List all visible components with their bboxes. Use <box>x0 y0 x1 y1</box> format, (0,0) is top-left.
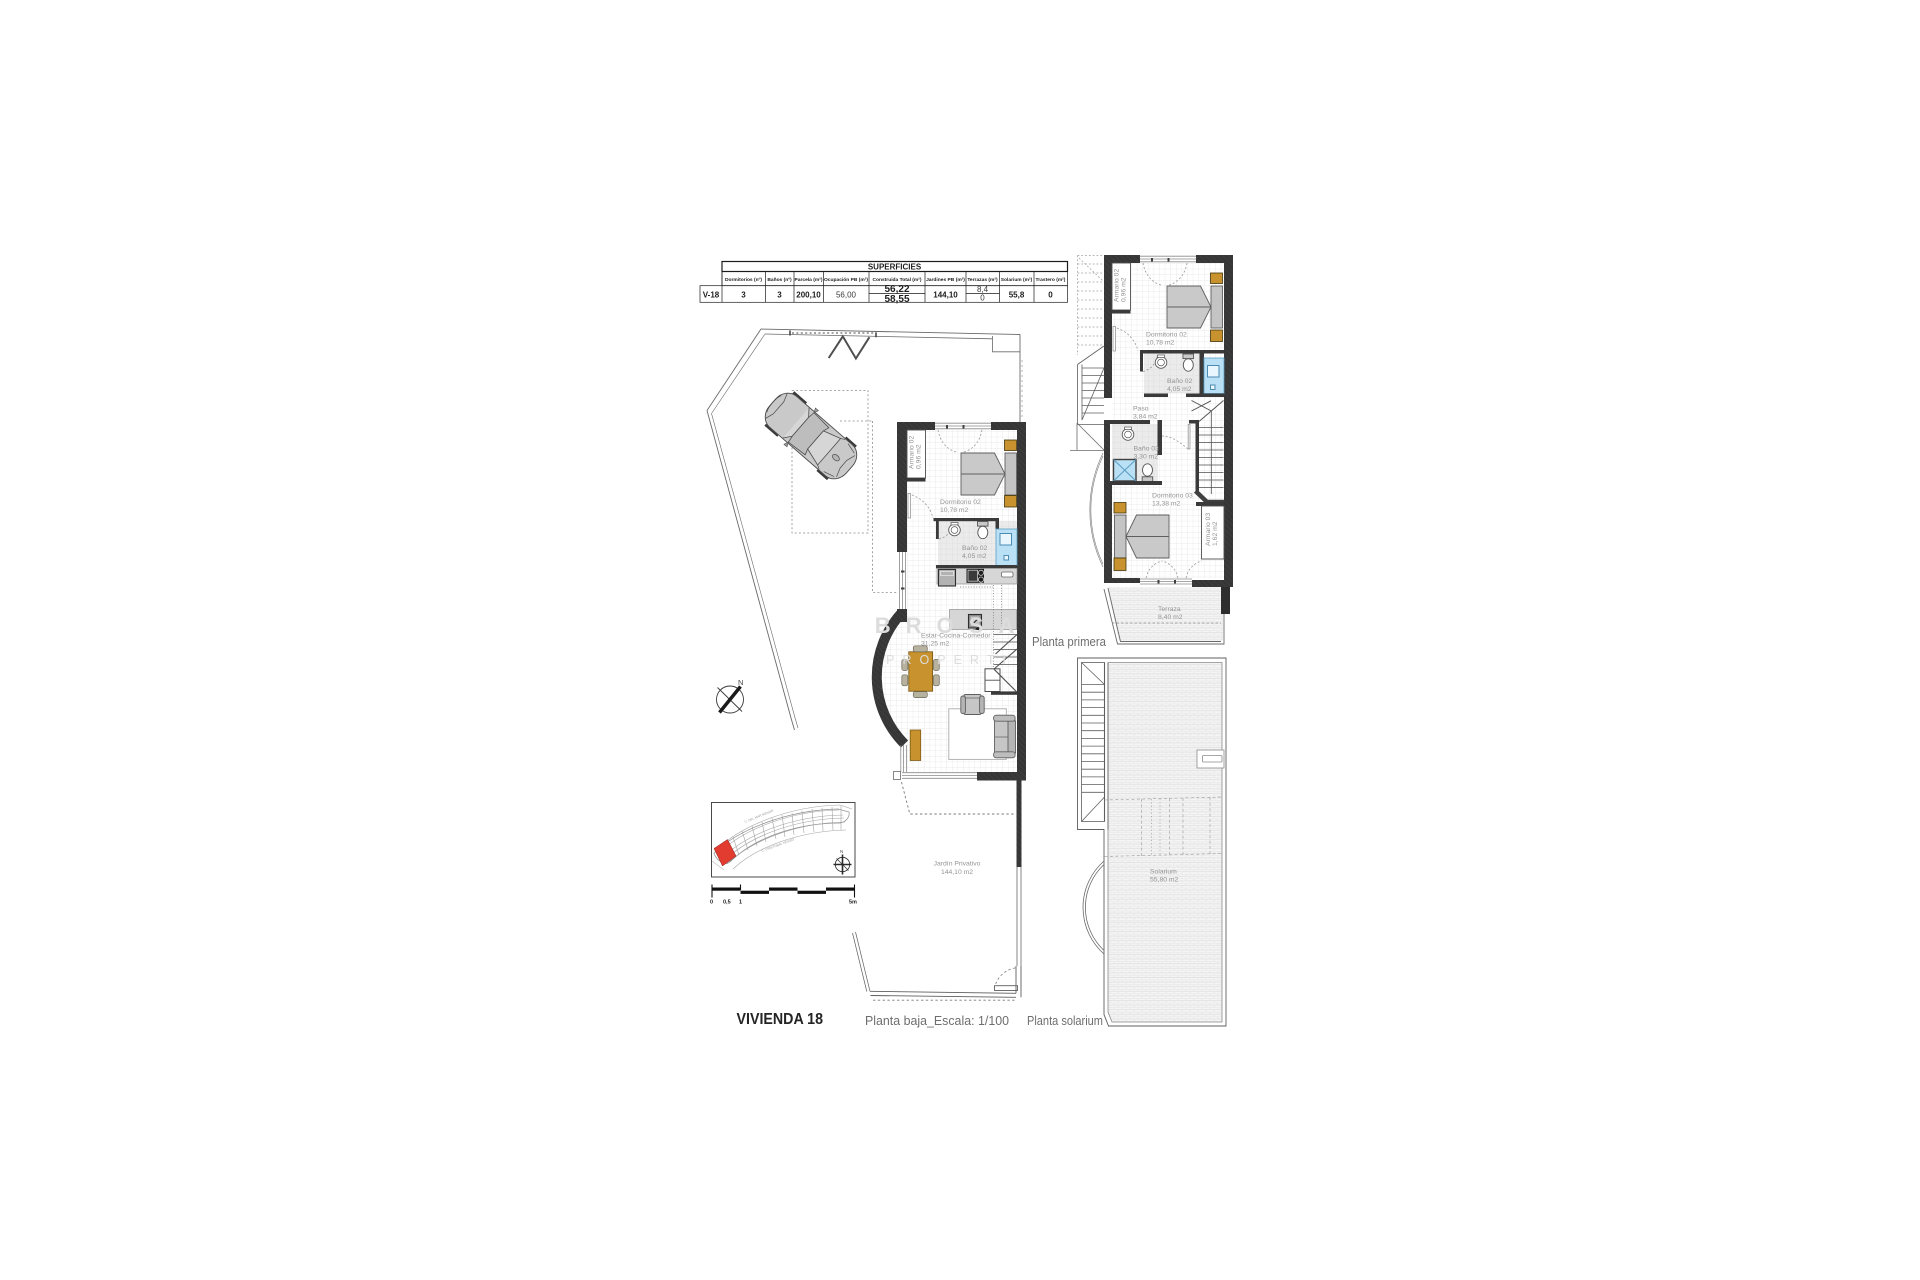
svg-text:0: 0 <box>1048 290 1053 299</box>
svg-text:Parcela (m²): Parcela (m²) <box>795 277 823 283</box>
svg-text:200,10: 200,10 <box>796 290 821 299</box>
svg-text:144,10: 144,10 <box>933 290 958 299</box>
svg-text:N: N <box>738 678 743 687</box>
svg-text:Dormitorio 02: Dormitorio 02 <box>1146 332 1187 339</box>
svg-text:3: 3 <box>777 290 782 299</box>
svg-text:Solarium: Solarium <box>1150 869 1177 876</box>
svg-text:Armario 02: Armario 02 <box>909 436 916 469</box>
svg-text:Trastero (m²): Trastero (m²) <box>1036 277 1066 283</box>
svg-text:Planta primera: Planta primera <box>1032 635 1106 649</box>
svg-text:Dormitorio 02: Dormitorio 02 <box>940 499 981 506</box>
svg-text:Baño 02: Baño 02 <box>962 545 988 552</box>
svg-text:144,10 m2: 144,10 m2 <box>941 869 973 876</box>
svg-text:3,84 m2: 3,84 m2 <box>1133 414 1158 421</box>
svg-text:Ocupación PB (m²): Ocupación PB (m²) <box>824 277 868 283</box>
svg-text:0,96 m2: 0,96 m2 <box>1121 277 1128 302</box>
svg-text:Baños (nº): Baños (nº) <box>767 277 792 283</box>
svg-text:0,96 m2: 0,96 m2 <box>916 444 923 469</box>
svg-text:8,40 m2: 8,40 m2 <box>1158 614 1183 621</box>
svg-text:PROPERTI: PROPERTI <box>886 653 1014 667</box>
svg-text:SUPERFICIES: SUPERFICIES <box>868 263 922 272</box>
svg-text:Planta solarium: Planta solarium <box>1027 1014 1103 1028</box>
svg-text:10,78 m2: 10,78 m2 <box>1146 340 1175 347</box>
svg-text:Terraza: Terraza <box>1158 606 1181 613</box>
svg-text:Paso: Paso <box>1133 406 1149 413</box>
svg-text:4,05 m2: 4,05 m2 <box>962 553 987 560</box>
svg-text:55,8: 55,8 <box>1009 290 1025 299</box>
svg-text:4,05 m2: 4,05 m2 <box>1167 386 1192 393</box>
svg-text:3,30 m2: 3,30 m2 <box>1134 454 1159 461</box>
svg-text:VIVIENDA 18: VIVIENDA 18 <box>737 1011 824 1028</box>
svg-text:55,80 m2: 55,80 m2 <box>1150 877 1179 884</box>
svg-text:0: 0 <box>710 900 713 906</box>
svg-text:Dormitorios (nº): Dormitorios (nº) <box>725 277 762 283</box>
svg-text:BROSA: BROSA <box>875 613 1029 638</box>
svg-text:Construida Total (m²): Construida Total (m²) <box>872 277 921 283</box>
svg-text:56,22: 56,22 <box>884 284 909 295</box>
svg-text:Armario 02: Armario 02 <box>1114 269 1121 302</box>
svg-text:N: N <box>840 849 843 854</box>
svg-text:Solarium (m²): Solarium (m²) <box>1001 277 1033 283</box>
svg-text:Planta baja_Escala: 1/100: Planta baja_Escala: 1/100 <box>865 1014 1009 1028</box>
svg-text:Baño 03: Baño 03 <box>1134 446 1160 453</box>
svg-text:Dormitorio 03: Dormitorio 03 <box>1152 493 1193 500</box>
svg-text:5m: 5m <box>849 900 857 906</box>
svg-text:13,38 m2: 13,38 m2 <box>1152 501 1181 508</box>
svg-text:3: 3 <box>741 290 746 299</box>
svg-text:1,62 m2: 1,62 m2 <box>1212 521 1219 546</box>
svg-text:V-18: V-18 <box>703 290 720 299</box>
svg-text:10,78 m2: 10,78 m2 <box>940 507 969 514</box>
svg-text:0: 0 <box>980 294 985 303</box>
svg-text:Baño 02: Baño 02 <box>1167 378 1193 385</box>
svg-text:Jardines PB (m²): Jardines PB (m²) <box>926 277 965 283</box>
svg-text:1: 1 <box>739 900 742 906</box>
svg-text:Terrazas (m²): Terrazas (m²) <box>967 277 998 283</box>
svg-text:56,00: 56,00 <box>836 290 857 299</box>
svg-text:Jardín Privativo: Jardín Privativo <box>934 861 981 868</box>
svg-text:Armario 03: Armario 03 <box>1205 513 1212 546</box>
svg-text:0,5: 0,5 <box>723 900 731 906</box>
svg-text:58,55: 58,55 <box>884 294 909 305</box>
